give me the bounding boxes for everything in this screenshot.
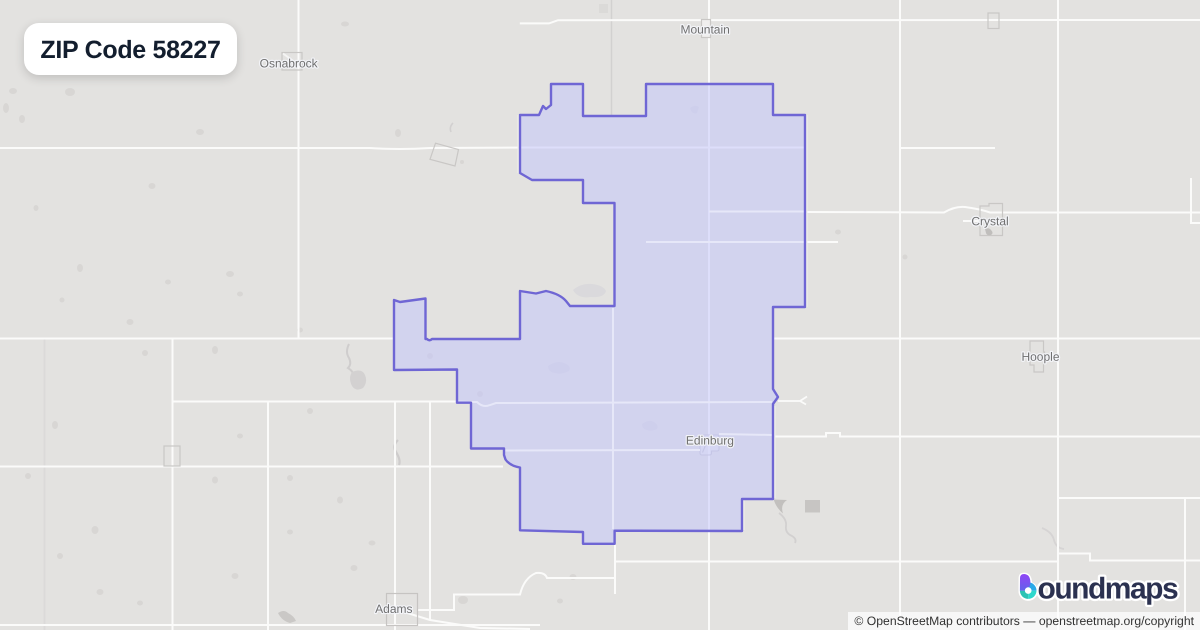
svg-text:oundmaps: oundmaps <box>1037 572 1178 605</box>
svg-text:Crystal: Crystal <box>971 214 1008 228</box>
svg-text:Edinburg: Edinburg <box>686 434 734 448</box>
svg-text:Hoople: Hoople <box>1021 350 1059 364</box>
svg-text:Osnabrock: Osnabrock <box>260 56 319 70</box>
svg-text:Mountain: Mountain <box>680 23 729 37</box>
svg-text:Adams: Adams <box>375 602 412 616</box>
